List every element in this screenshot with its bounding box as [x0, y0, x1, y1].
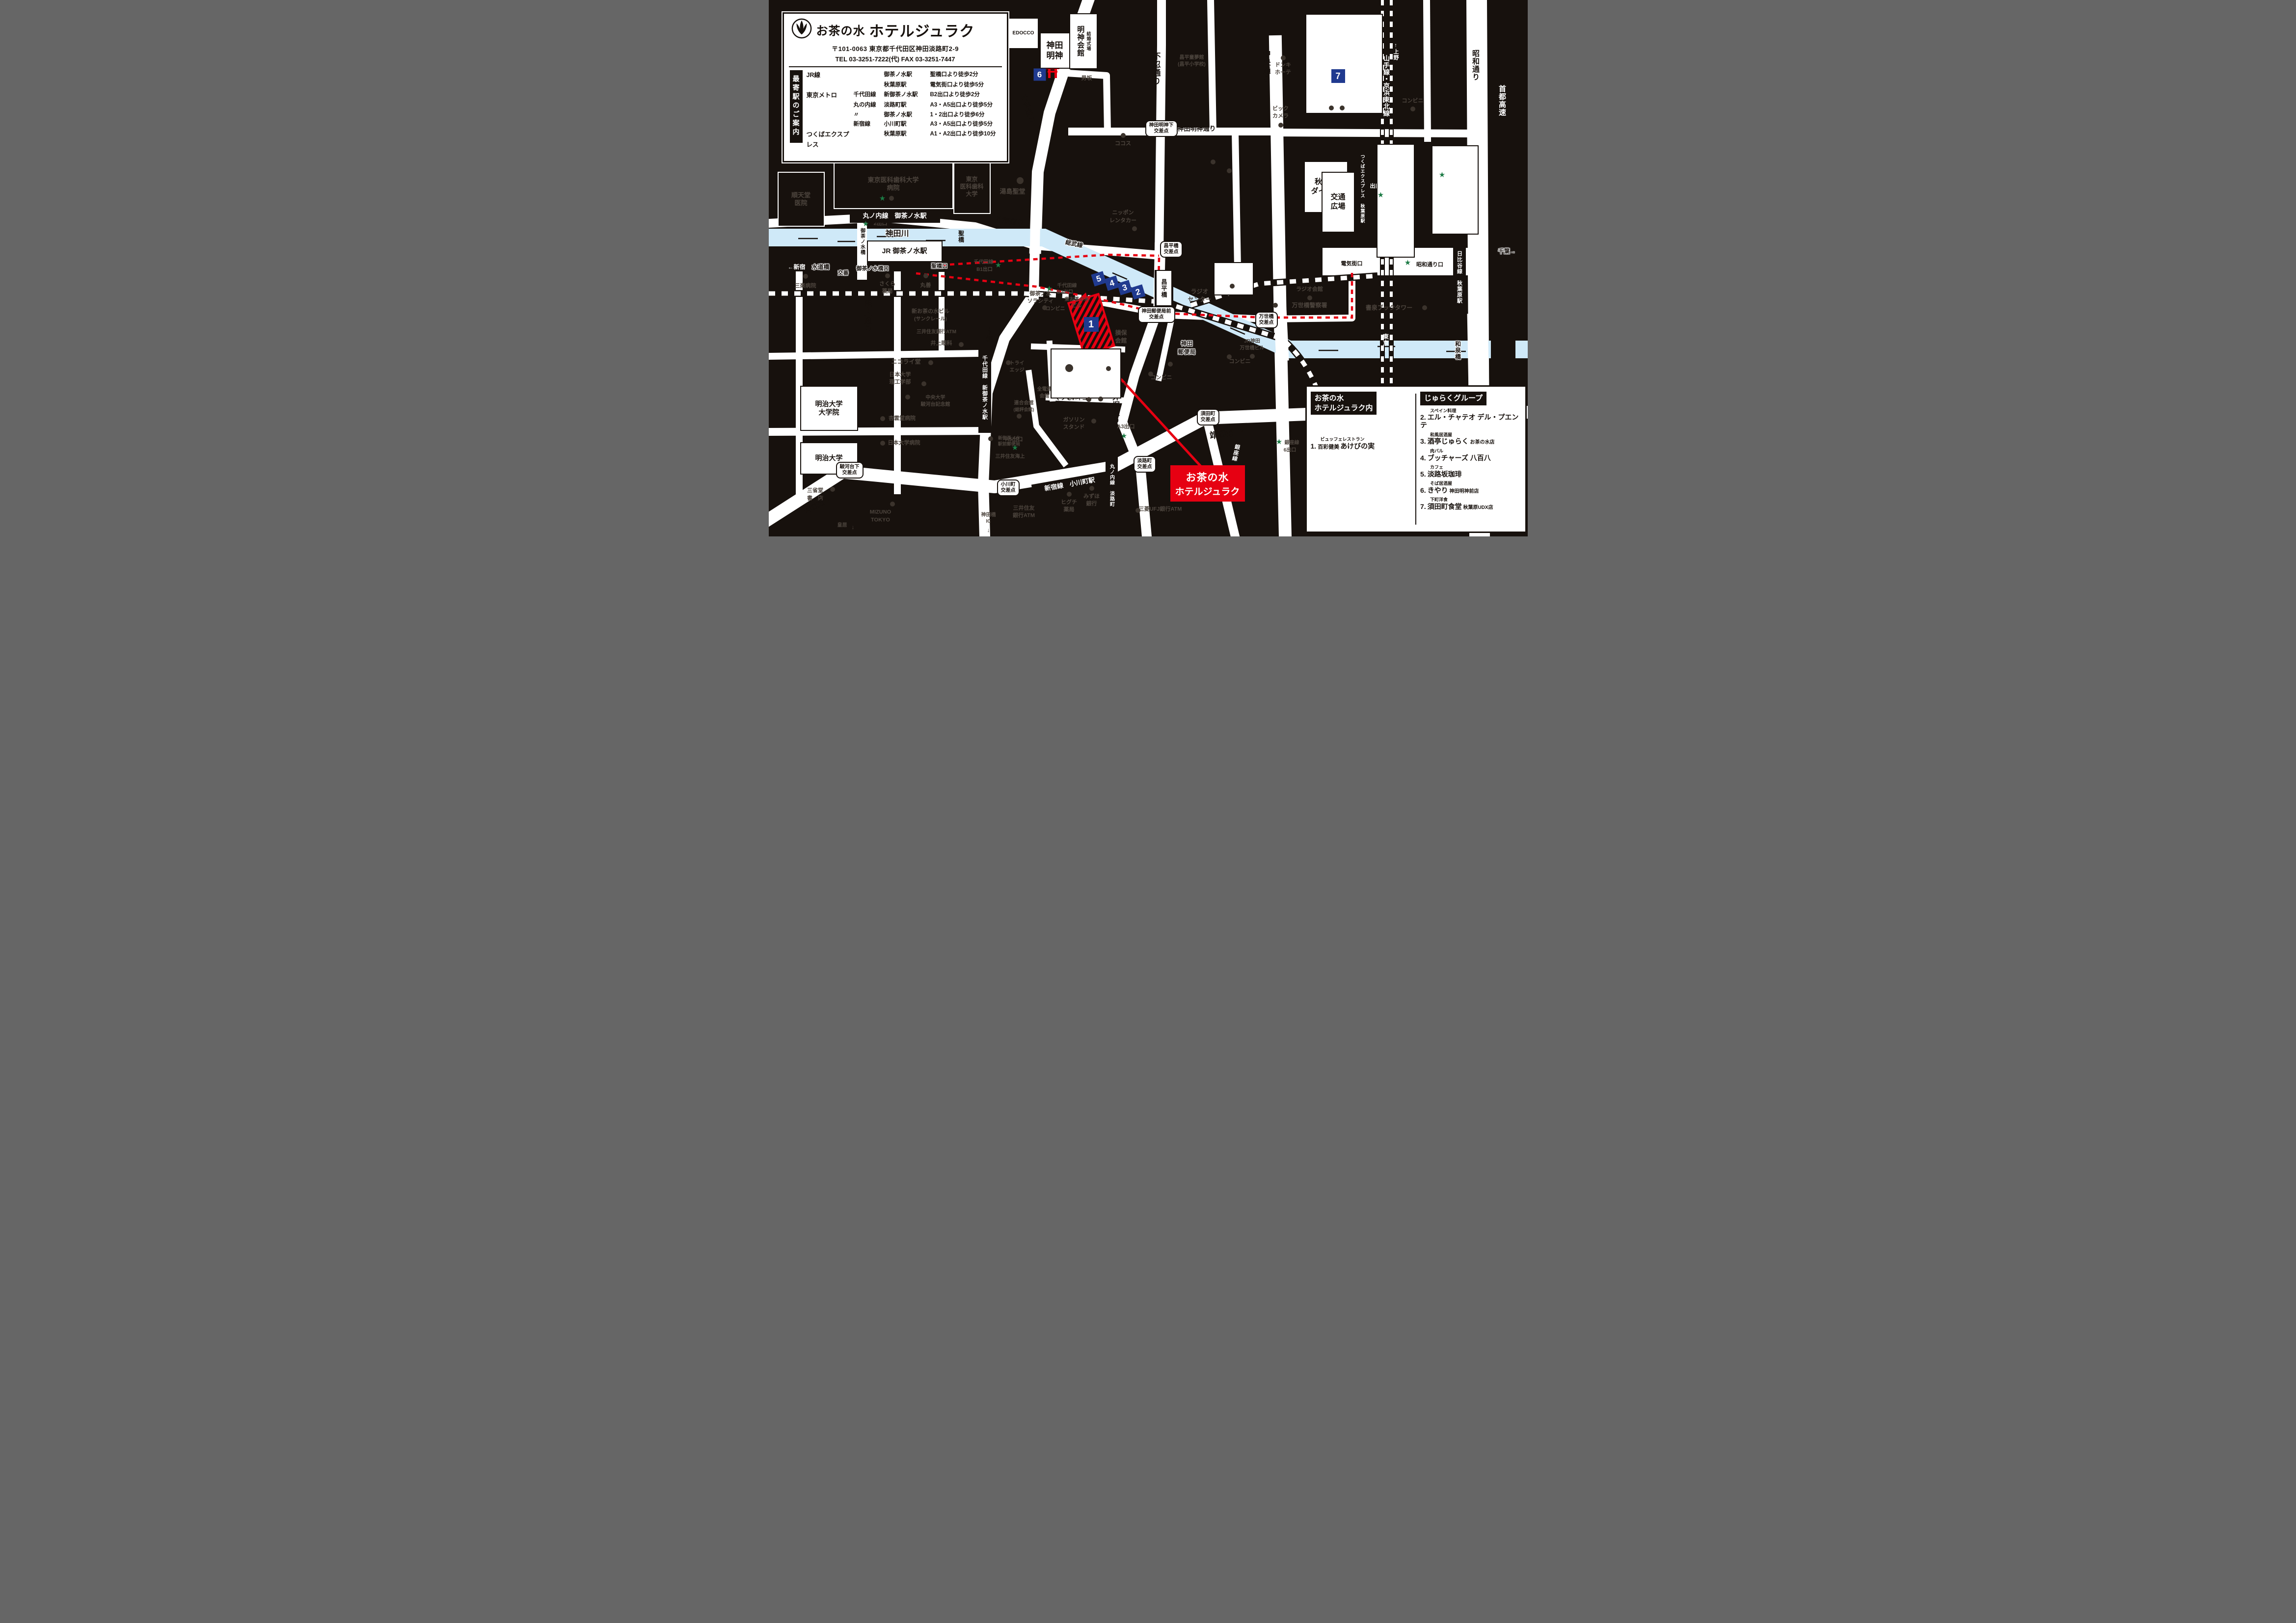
map-building-label: 交通 [1330, 193, 1345, 202]
map-building-box: 昌平橋 [1155, 270, 1173, 306]
access-co [807, 110, 854, 120]
poi-dot [923, 273, 928, 278]
map-building-box: 東京医科歯科大学 [953, 159, 991, 214]
access-st: 秋葉原駅 [884, 80, 930, 90]
map-building-box: 交通広場 [1322, 172, 1355, 233]
map-building-label: 広場 [1330, 202, 1345, 212]
map-label: ←新宿 [787, 264, 805, 270]
access-st: 秋葉原駅 [884, 130, 930, 151]
map-label: (サンクレール) [914, 317, 947, 322]
map-label: 全電通 [1037, 387, 1052, 392]
map-building-box: 明治大学大学院 [800, 386, 858, 431]
access-co [807, 101, 854, 110]
numbered-marker-4: 4 [1104, 275, 1119, 291]
map-building-box [1377, 144, 1415, 258]
map-label: 中央通り [1262, 50, 1270, 83]
map-building-label: 明神会館 [1076, 26, 1085, 57]
map-label: 山手線・京浜東北線 [1383, 55, 1389, 117]
callout-line1: お茶の水 [1186, 470, 1229, 484]
map-label: 男坂 [1081, 76, 1092, 81]
intersection-label: 万世橋交差点 [1255, 312, 1278, 328]
numbered-marker-1: 1 [1084, 317, 1099, 332]
exit-star-icon: ★ [1276, 437, 1282, 446]
access-nt: A1・A2出口より徒歩10分 [930, 130, 1002, 151]
poi-dot [1042, 305, 1047, 310]
map-label: レンタカー [1109, 218, 1136, 224]
map-label: ニッポン [1112, 211, 1134, 216]
access-row: JR線御茶ノ水駅聖橋口より徒歩2分 [807, 70, 1002, 80]
access-st: 淡路町駅 [884, 101, 930, 110]
map-label: 御茶ノ水橋口 [857, 266, 889, 272]
poi-dot [1089, 486, 1094, 491]
map-label: ラジオ会館 [1296, 287, 1323, 293]
map-label: 聖橋 [958, 230, 964, 243]
map-label: ↓ [852, 524, 855, 530]
poi-dot [1098, 397, 1103, 401]
numbered-marker-2: 2 [1130, 284, 1145, 299]
map-label: 皇居 [837, 523, 847, 528]
access-st: 新御茶ノ水駅 [884, 90, 930, 101]
hotel-callout: お茶の水 ホテルジュラク [1170, 465, 1245, 502]
map-label: 郵便局 [1178, 349, 1195, 355]
access-ln [854, 70, 884, 80]
poi-dot [1281, 55, 1286, 60]
map-label: 日本大学病院 [888, 441, 920, 446]
access-nt: A3・A5出口より徒歩5分 [930, 120, 1002, 130]
legend-group-item: スペイン料理2.エル・チャテオ デル・プエンテ [1420, 409, 1521, 429]
poi-dot [1091, 419, 1096, 424]
access-nt: B2出口より徒歩2分 [930, 90, 1002, 101]
exit-star-icon: ★ [1121, 431, 1127, 440]
map-label: ソラシティ [1027, 299, 1053, 304]
poi-dot [1006, 360, 1011, 365]
station-banner: 丸ノ内線 淡路町 [1106, 455, 1118, 515]
map-label: 会館 [1040, 394, 1050, 399]
access-ln: 新宿線 [854, 120, 884, 130]
map-label: 三井住友海上 [996, 454, 1025, 459]
callout-line2: ホテルジュラク [1175, 484, 1240, 498]
map-label: 万世橋警察署 [1292, 302, 1327, 308]
exit-star-icon: ★ [879, 194, 886, 203]
access-ln: 〃 [854, 110, 884, 120]
map-building-label: JR 御茶ノ水駅 [882, 247, 927, 256]
map-label: (昌平小学校) [1178, 62, 1206, 67]
hotel-name: ホテルジュラク [869, 19, 975, 41]
map-label: 日本大学 [890, 372, 911, 378]
map-building-label: 東京 [960, 176, 983, 183]
map-label: 書泉ブックタワー [1366, 305, 1413, 311]
map-building-box: 神田明神 [1040, 32, 1070, 69]
exit-star-icon: ★ [1405, 258, 1411, 267]
map-label: コンビニ [1046, 307, 1065, 312]
map-label: 三省堂 [807, 488, 823, 494]
map-label: ↑上野 [1393, 43, 1398, 61]
map-building-box: 順天堂医院 [778, 172, 825, 227]
legend-hotel-column: お茶の水 ホテルジュラク内 ビュッフェレストラン 1.百彩健美あけびの実 [1307, 387, 1416, 532]
poi-dot [889, 196, 894, 201]
map-label: 東京↓ [1383, 334, 1389, 354]
map-building-label: 東京医科歯科大学 [867, 176, 918, 184]
map-label: 銀行 [1086, 502, 1097, 507]
map-label: 明大通り [863, 300, 871, 333]
access-co [807, 80, 854, 90]
map-building-box: 結婚式場明神会館 [1069, 13, 1098, 69]
map-label: TOKYO [871, 518, 890, 523]
exit-star-icon: ★ [995, 261, 1001, 269]
numbered-marker-5: 5 [1091, 271, 1106, 286]
legend-hotel-item: ビュッフェレストラン 1.百彩健美あけびの実 [1311, 437, 1412, 451]
map-label: A5出口 [1005, 437, 1023, 443]
map-building-box: 東京医科歯科大学病院 [834, 159, 953, 209]
map-building-label: 明神 [1047, 51, 1063, 61]
access-ln: 千代田線 [854, 90, 884, 101]
poi-dot [885, 273, 890, 278]
access-co [807, 120, 854, 130]
poi-dot [1227, 354, 1232, 359]
exit-star-icon: ★ [863, 219, 869, 228]
poi-dot [1148, 372, 1153, 376]
poi-dot [1340, 106, 1345, 110]
map-label: 不忍通り [1152, 52, 1160, 85]
access-co: 東京メトロ [807, 90, 854, 101]
map-label: 御茶ノ水橋 [860, 228, 864, 255]
map-label: 三井住友銀行ATM [917, 330, 956, 335]
numbered-marker-7: 7 [1331, 69, 1345, 83]
map-stage: 男坂御茶ノ水1出口郵便局2出口湯島聖堂ココスニッポンレンタカー昌平童夢館(昌平小… [769, 0, 1528, 536]
map-label: トライ [1010, 361, 1025, 366]
exit-star-icon: ★ [1378, 190, 1384, 199]
map-label: JR神田 [1244, 339, 1260, 344]
map-label: ニコライ堂 [891, 359, 920, 365]
map-label: 6出口 [1284, 448, 1297, 453]
map-label: 万世橋ビル [1240, 346, 1265, 351]
poi-dot [1422, 305, 1427, 310]
map-label: 理工学部 [890, 380, 911, 385]
hotel-logo-icon [791, 18, 812, 42]
map-label: 電気街口 [1341, 262, 1363, 267]
map-label: 外堀通り [994, 216, 1025, 227]
map-label: コンビニ [1402, 99, 1424, 104]
map-label: 聖橋口 [931, 264, 947, 269]
numbered-marker-6: 6 [1033, 69, 1046, 81]
map-label: 交番 [838, 271, 849, 276]
poi-dot [1065, 364, 1073, 372]
map-label: 薬局 [882, 289, 893, 294]
legend-group-header: じゅらくグループ [1420, 392, 1486, 405]
map-label: B2出口 [1057, 290, 1073, 295]
map-label: 昭和通り口 [1416, 263, 1443, 268]
exit-star-icon: ★ [1012, 443, 1018, 452]
map-building-box [1432, 145, 1479, 235]
map-label: ビック [1272, 106, 1289, 112]
map-label: 総武線 [1065, 239, 1083, 248]
access-st: 小川町駅 [884, 120, 930, 130]
legend-group-item: 下町洋食7.須田町食堂 秋葉原UDX店 [1420, 498, 1521, 510]
intersection-label: 小川町交差点 [997, 479, 1020, 496]
map-label: みずほ [1083, 494, 1100, 500]
access-row: 〃御茶ノ水駅1・2出口より徒歩6分 [807, 110, 1002, 120]
map-building-label: 明治大学 [815, 454, 843, 463]
map-label: IC [986, 519, 991, 524]
legend-hotel-header: お茶の水 ホテルジュラク内 [1311, 392, 1377, 415]
poi-dot [880, 416, 885, 421]
map-building-label: EDOCCO [1013, 30, 1034, 37]
access-nt: A3・A5出口より徒歩5分 [930, 101, 1002, 110]
map-building-label: 結婚式場 [1085, 31, 1091, 51]
map-building-box: JR 御茶ノ水駅 [867, 240, 943, 262]
map-label: ガソリン [1063, 418, 1085, 423]
map-label: 連合会館 [1014, 401, 1034, 406]
map-label: コンビニ [1151, 375, 1172, 381]
numbered-marker-3: 3 [1117, 280, 1132, 295]
map-label: 丸善 [920, 283, 931, 289]
poi-dot [1132, 226, 1137, 231]
access-row: 丸の内線淡路町駅A3・A5出口より徒歩5分 [807, 101, 1002, 110]
map-label: MIZUNO [870, 510, 891, 515]
hotel-name-prefix: お茶の水 [816, 21, 865, 38]
access-co: JR線 [807, 70, 854, 80]
poi-dot [1230, 284, 1235, 289]
exit-star-icon: ★ [1439, 170, 1445, 179]
poi-dot [830, 487, 835, 492]
poi-dot [1121, 133, 1126, 138]
map-label: コンビニ [1229, 359, 1251, 365]
map-label: 神田川 [885, 230, 909, 238]
map-label: 千代田線 [974, 260, 994, 265]
map-building-box [1214, 262, 1254, 295]
map-label: 薬局 [1064, 507, 1075, 513]
legend-group-column: じゅらくグループ スペイン料理2.エル・チャテオ デル・プエンテ和風居酒屋3.酒… [1416, 387, 1525, 532]
map-label: センター [1188, 296, 1211, 302]
station-banner: 千代田線 新御茶ノ水駅 [978, 342, 991, 433]
poi-dot [1086, 397, 1091, 402]
intersection-label: 淡路町交差点 [1134, 456, 1156, 473]
poi-dot [1227, 168, 1232, 173]
poi-dot [880, 441, 885, 446]
poi-dot [1106, 366, 1111, 371]
map-building-label: 昌平橋 [1160, 279, 1167, 298]
map-label: 三井住友 [1013, 506, 1035, 511]
map-building-label: 大学院 [815, 408, 843, 417]
legend-group-item: 肉バル4.ブッチャーズ 八百八 [1420, 449, 1521, 462]
map-label: 駿河台記念館 [921, 402, 950, 407]
hotel-address: 〒101-0063 東京都千代田区神田淡路町2-9 [784, 44, 1007, 53]
map-building-box: EDOCCO [1008, 18, 1039, 49]
legend-group-item: 和風居酒屋3.酒亭じゅらく お茶の水店 [1420, 433, 1521, 446]
poi-dot [1278, 123, 1283, 128]
access-row: 秋葉原駅電気街口より徒歩5分 [807, 80, 1002, 90]
legend-box: お茶の水 ホテルジュラク内 ビュッフェレストラン 1.百彩健美あけびの実 じゅら… [1305, 385, 1527, 533]
access-row: つくばエクスプレス秋葉原駅A1・A2出口より徒歩10分 [807, 130, 1002, 151]
poi-dot [959, 342, 964, 347]
map-building-label: 神田 [1047, 40, 1063, 51]
map-label: 神田橋 [981, 513, 996, 518]
hotel-tel-fax: TEL 03-3251-7222(代) FAX 03-3251-7447 [784, 54, 1007, 63]
poi-dot [1273, 303, 1278, 308]
map-label: ドンキ [1275, 63, 1291, 68]
map-label: 銀座線 [1285, 441, 1299, 446]
map-label: カメラ [1272, 114, 1289, 119]
legend-group-item: カフェ5.淡路坂珈琲 [1420, 465, 1521, 478]
map-building-label: 大学 [960, 190, 983, 198]
map-label: 杏雲堂病院 [889, 416, 916, 422]
access-ln: 丸の内線 [854, 101, 884, 110]
map-label: (総評会館) [1014, 408, 1034, 412]
map-building-label: 医院 [791, 199, 810, 207]
intersection-label: 駿河台下交差点 [836, 462, 864, 479]
hotel-info-box: お茶の水 ホテルジュラク 〒101-0063 東京都千代田区神田淡路町2-9 T… [783, 12, 1008, 162]
map-building-label: 医科歯科 [960, 183, 983, 190]
map-label: ↓ [987, 527, 990, 533]
intersection-label: 神田明神下交差点 [1145, 120, 1178, 137]
station-banner: つくばエクスプレス 秋葉原駅 [1356, 145, 1369, 232]
map-label: ラジオ [1191, 289, 1209, 294]
access-nt: 1・2出口より徒歩6分 [930, 110, 1002, 120]
poi-dot [890, 502, 895, 506]
map-label: 神田 [1181, 341, 1192, 346]
intersection-label: 昌平橋交差点 [1160, 241, 1183, 258]
map-label: ヒグチ [1061, 500, 1077, 506]
poi-dot [1211, 160, 1216, 164]
access-ln [854, 80, 884, 90]
map-label: ホーテ [1275, 70, 1291, 76]
juraku-group-list: スペイン料理2.エル・チャテオ デル・プエンテ和風居酒屋3.酒亭じゅらく お茶の… [1420, 409, 1521, 511]
map-label: 本郷通り [1018, 93, 1035, 125]
map-label: 千葉→ [1498, 248, 1515, 254]
intersection-label: 神田郵便局前交差点 [1138, 306, 1175, 323]
map-label: ビル [1072, 304, 1082, 309]
intersection-label: 須田町交差点 [1197, 409, 1219, 426]
access-table: JR線御茶ノ水駅聖橋口より徒歩2分秋葉原駅電気街口より徒歩5分東京メトロ千代田線… [807, 70, 1002, 150]
access-ln [854, 130, 884, 151]
poi-dot [1017, 414, 1022, 419]
map-label: 会館 [1115, 338, 1127, 344]
divider [789, 66, 1002, 67]
map-label: A3出口 [1117, 425, 1134, 430]
map-label: 千代田線 [1057, 284, 1077, 289]
poi-dot [1135, 508, 1140, 513]
poi-dot [1307, 295, 1312, 300]
map-label: 銀行ATM [1013, 513, 1035, 519]
map-label: 首都高速 [1498, 85, 1506, 116]
poi-dot [803, 274, 808, 279]
poi-dot [988, 436, 993, 441]
poi-dot [928, 360, 933, 365]
access-co: つくばエクスプレス [807, 130, 854, 151]
poi-dot [921, 381, 926, 386]
map-label: 中央大学 [926, 396, 945, 400]
map-label: 和泉橋 [1455, 341, 1461, 360]
exit-star-icon: ★ [1046, 284, 1053, 293]
access-nt: 聖橋口より徒歩2分 [930, 70, 1002, 80]
nearest-station-sidebar: 最寄駅のご案内 [790, 70, 803, 143]
map-label: 東お茶の水 [1065, 297, 1089, 302]
poi-dot [1168, 362, 1173, 367]
map-label: さくら [879, 282, 895, 287]
map-building-box [1051, 348, 1121, 399]
access-st: 御茶ノ水駅 [884, 110, 930, 120]
map-building-box [1305, 14, 1383, 114]
map-label: スタンド [1063, 425, 1085, 430]
poi-dot [1017, 177, 1024, 184]
station-banner: 日比谷線 秋葉原駅 [1453, 239, 1466, 316]
map-label: 神田明神通り [1177, 126, 1216, 132]
poi-dot [905, 395, 910, 399]
access-st: 御茶ノ水駅 [884, 70, 930, 80]
map-label: 湯島聖堂 [999, 188, 1025, 195]
map-label: 新お茶の水ビル [912, 309, 949, 315]
map-label: 三楽病院 [795, 284, 816, 289]
map-label: 損保 [1115, 330, 1127, 336]
access-row: 新宿線小川町駅A3・A5出口より徒歩5分 [807, 120, 1002, 130]
map-label: 井上眼科 [931, 341, 952, 346]
map-building-label: 明治大学 [815, 400, 843, 409]
access-nt: 電気街口より徒歩5分 [930, 80, 1002, 90]
map-building-label: 順天堂 [791, 191, 810, 199]
legend-group-item: そば居酒屋6.きやり 神田明神前店 [1420, 481, 1521, 494]
map-label: 三菱UFJ銀行ATM [1139, 507, 1182, 512]
poi-dot [1410, 106, 1415, 111]
map-label: 昭和通り [1472, 50, 1479, 81]
access-row: 東京メトロ千代田線新御茶ノ水駅B2出口より徒歩2分 [807, 90, 1002, 101]
poi-dot [1067, 492, 1072, 497]
map-label: 昌平童夢館 [1180, 55, 1204, 60]
poi-dot [1250, 354, 1255, 359]
map-building-label: 病院 [867, 184, 918, 192]
map-label: B1出口 [976, 267, 993, 272]
map-label: エッジ [1010, 368, 1025, 373]
map-label: ココス [1115, 141, 1131, 147]
map-label: 水道橋 [811, 264, 829, 270]
poi-dot [1329, 106, 1334, 110]
